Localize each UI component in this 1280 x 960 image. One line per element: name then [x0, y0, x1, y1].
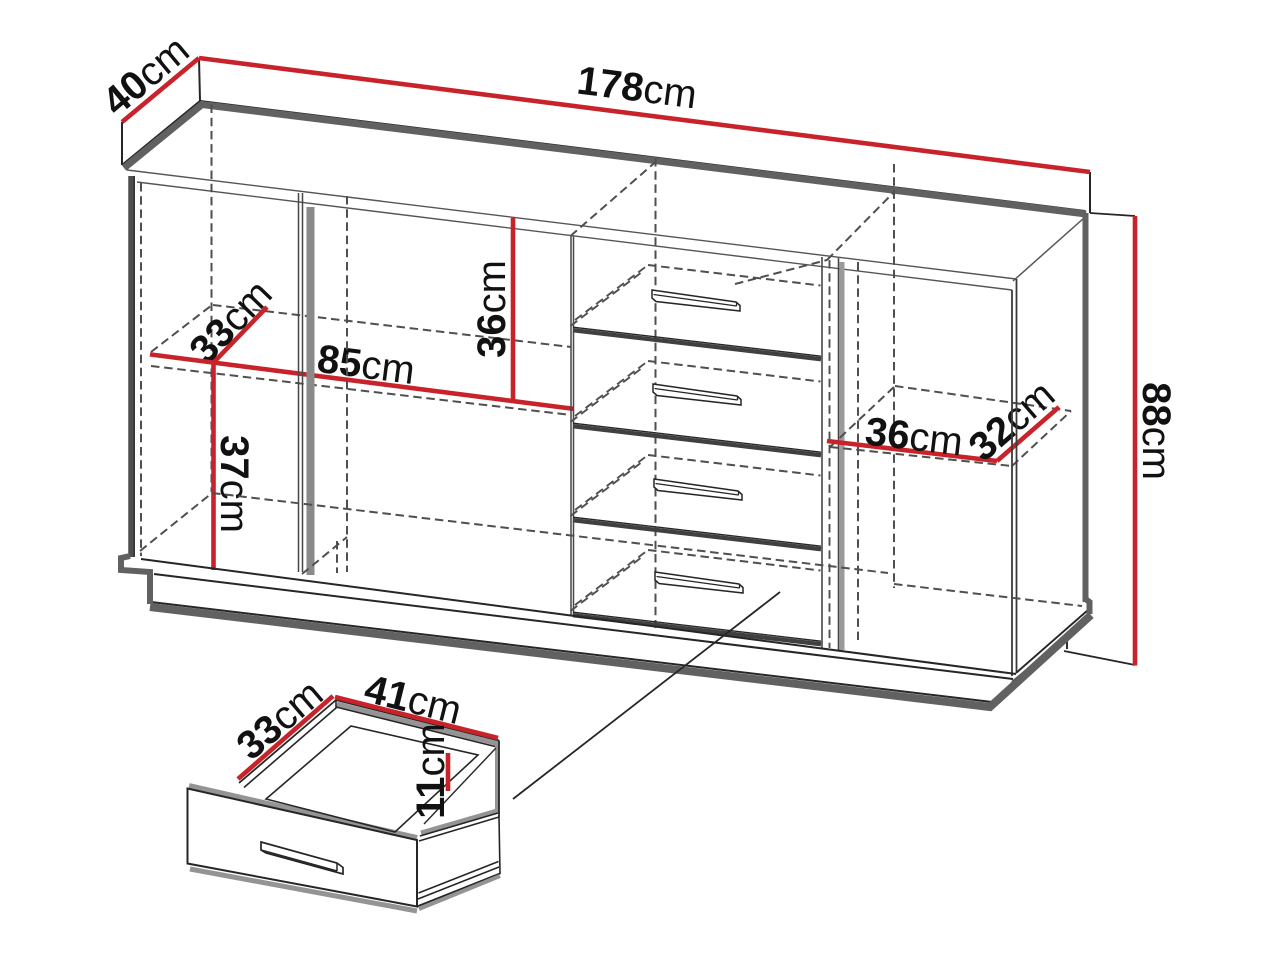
svg-text:88cm: 88cm: [1134, 382, 1178, 480]
svg-text:36cm: 36cm: [470, 260, 514, 358]
svg-text:37cm: 37cm: [212, 435, 256, 533]
svg-text:11cm: 11cm: [409, 723, 453, 819]
